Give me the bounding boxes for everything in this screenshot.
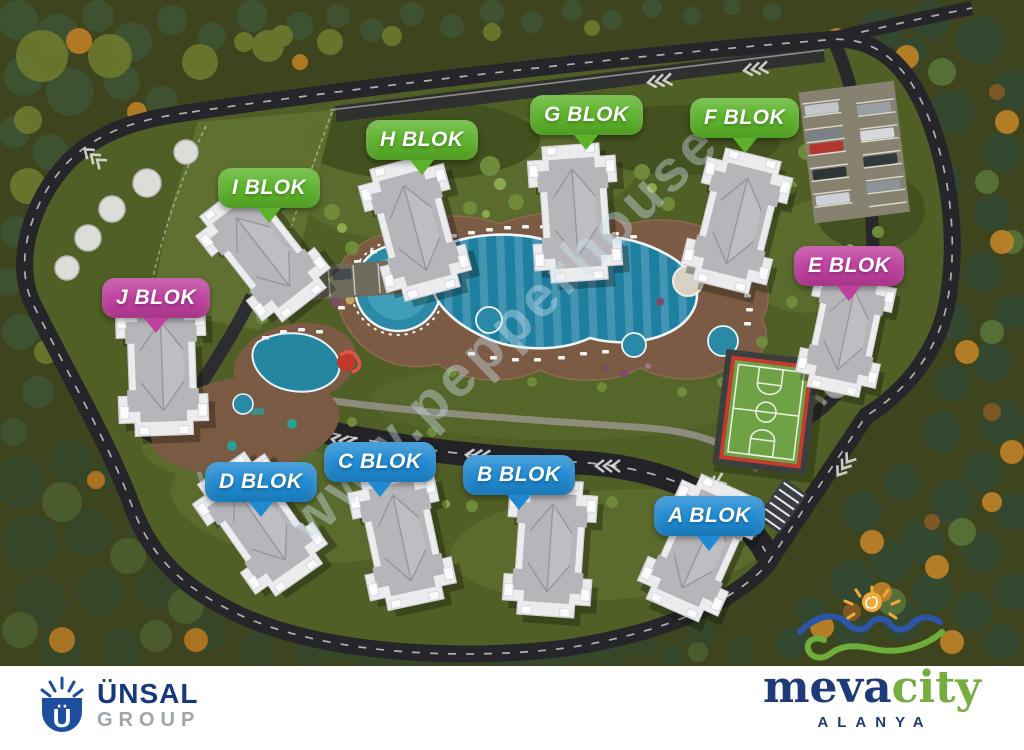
unsal-group-text: GROUP [97,710,200,730]
block-label-j: J BLOK [102,278,210,318]
block-label-f: F BLOK [690,98,799,138]
unsal-name: ÜNSAL [97,680,200,708]
mevacity-wordmark: mevacity ALANYA [752,666,992,730]
block-label-d-text: D BLOK [219,470,303,493]
block-label-a: A BLOK [654,496,765,536]
block-label-c: C BLOK [324,442,436,482]
block-label-e: E BLOK [794,246,904,286]
block-label-a-text: A BLOK [668,504,751,527]
block-label-i-text: I BLOK [232,176,306,199]
unsal-logo-icon: Ü [36,674,88,736]
site-plan-image: www.pepperhouse I BLOK H BLOK G BLOK F B… [0,0,1024,750]
meva-word-accent: city [892,662,981,713]
meva-word-main: meva [763,662,892,713]
meva-subtitle: ALANYA [758,715,992,730]
block-label-c-text: C BLOK [338,450,422,473]
block-label-i: I BLOK [218,168,320,208]
block-label-j-text: J BLOK [116,286,196,309]
block-label-b: B BLOK [463,455,575,495]
block-label-h-text: H BLOK [380,128,464,151]
block-label-g-text: G BLOK [544,103,629,126]
svg-text:Ü: Ü [53,703,72,733]
aerial-render: www.pepperhouse [0,0,1024,666]
footer-bar: Ü ÜNSAL GROUP mevacity ALANYA [0,666,1024,750]
block-label-f-text: F BLOK [704,106,785,129]
block-label-d: D BLOK [205,462,317,502]
block-label-g: G BLOK [530,95,643,135]
block-label-b-text: B BLOK [477,463,561,486]
parking-lot-main [799,81,910,224]
block-label-h: H BLOK [366,120,478,160]
block-label-e-text: E BLOK [808,254,890,277]
unsal-group-logo: Ü ÜNSAL GROUP [36,674,200,736]
